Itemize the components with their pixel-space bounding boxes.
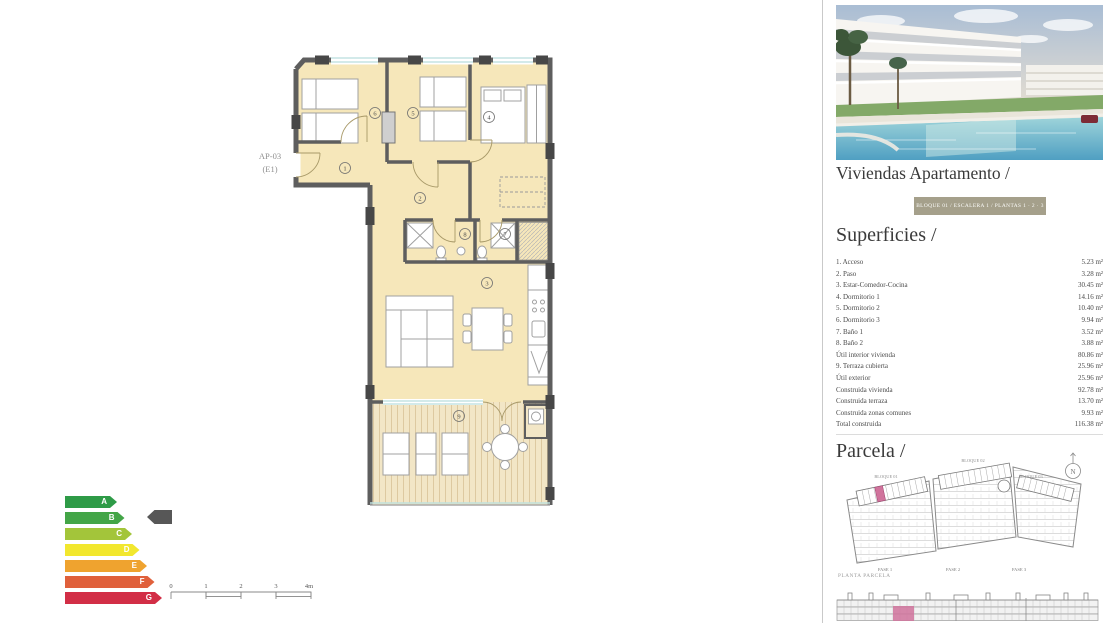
superficie-value: 25.96 m² xyxy=(1078,373,1103,385)
superficie-row: 3. Estar-Comedor-Cocina30.45 m² xyxy=(836,280,1103,292)
superficie-row: 9. Terraza cubierta25.96 m² xyxy=(836,361,1103,373)
elevation-drawing xyxy=(836,590,1100,621)
energy-bar-letter: G xyxy=(146,592,152,604)
svg-text:BLOQUE 02: BLOQUE 02 xyxy=(961,458,984,463)
energy-bar-a: A xyxy=(65,496,117,508)
energy-bar-g: G xyxy=(65,592,162,604)
svg-text:0: 0 xyxy=(169,583,172,590)
superficie-label: 6. Dormitorio 3 xyxy=(836,315,880,327)
roof-ticks xyxy=(837,593,1098,600)
svg-text:2: 2 xyxy=(239,583,242,590)
superficie-label: 5. Dormitorio 2 xyxy=(836,303,880,315)
superficie-row: 4. Dormitorio 114.16 m² xyxy=(836,292,1103,304)
superficie-label: 8. Baño 2 xyxy=(836,338,863,350)
superficie-value: 92.78 m² xyxy=(1078,385,1103,397)
vertical-divider xyxy=(822,0,823,623)
energy-bar-b: B xyxy=(65,512,125,524)
superficie-value: 9.93 m² xyxy=(1081,408,1103,420)
superficie-row: Total construida116.38 m² xyxy=(836,419,1103,431)
energy-bar-letter: F xyxy=(140,576,145,588)
superficie-row: 8. Baño 23.88 m² xyxy=(836,338,1103,350)
superficie-value: 9.94 m² xyxy=(1081,315,1103,327)
superficie-label: 1. Acceso xyxy=(836,257,863,269)
building-photo xyxy=(836,5,1103,160)
superficie-label: 3. Estar-Comedor-Cocina xyxy=(836,280,908,292)
superficie-row: 1. Acceso5.23 m² xyxy=(836,257,1103,269)
superficie-label: Construida terraza xyxy=(836,396,888,408)
superficie-value: 14.16 m² xyxy=(1078,292,1103,304)
superficie-row: Construida zonas comunes9.93 m² xyxy=(836,408,1103,420)
page-title: Viviendas Apartamento / xyxy=(836,163,1010,184)
svg-text:FASE 3: FASE 3 xyxy=(1012,567,1027,572)
superficie-row: Útil interior vivienda80.86 m² xyxy=(836,350,1103,362)
superficie-value: 3.28 m² xyxy=(1081,269,1103,281)
superficie-value: 10.40 m² xyxy=(1078,303,1103,315)
superficie-row: 5. Dormitorio 210.40 m² xyxy=(836,303,1103,315)
superficie-label: Construida zonas comunes xyxy=(836,408,911,420)
energy-bar-letter: D xyxy=(124,544,130,556)
energy-bar-letter: A xyxy=(101,496,107,508)
superficie-label: 2. Paso xyxy=(836,269,856,281)
svg-text:3: 3 xyxy=(274,583,277,590)
energy-bar-c: C xyxy=(65,528,132,540)
site-plan: BLOQUE 01 BLOQUE 02 BLOQUE 03 FASE 1 FAS… xyxy=(841,450,1093,578)
scale-bar: 0 1 2 3 4m xyxy=(168,581,314,605)
energy-bar-letter: C xyxy=(116,528,122,540)
fase-labels: FASE 1 FASE 2 FASE 3 xyxy=(878,567,1027,572)
floor-plan: 1 2 3 4 5 6 7 8 9 xyxy=(283,55,573,515)
superficie-row: 7. Baño 13.52 m² xyxy=(836,327,1103,339)
superficie-label: Útil exterior xyxy=(836,373,870,385)
parcela-section: Parcela / xyxy=(836,440,1103,623)
superficie-value: 3.88 m² xyxy=(1081,338,1103,350)
superficie-row: 2. Paso3.28 m² xyxy=(836,269,1103,281)
compass-icon: N xyxy=(1066,453,1081,479)
superficie-label: Útil interior vivienda xyxy=(836,350,895,362)
energy-bar-letter: E xyxy=(132,560,137,572)
planta-parcela-caption: PLANTA PARCELA xyxy=(838,573,891,579)
energy-bar-letter: B xyxy=(109,512,115,524)
svg-text:2: 2 xyxy=(418,196,421,203)
superficie-label: 9. Terraza cubierta xyxy=(836,361,888,373)
svg-text:8: 8 xyxy=(463,232,466,239)
scale-labels: 0 1 2 3 4m xyxy=(169,583,313,590)
energy-bar-f: F xyxy=(65,576,155,588)
brochure-page: AP-03 (E1) xyxy=(0,0,1110,623)
svg-text:4m: 4m xyxy=(305,583,313,590)
superficie-label: 7. Baño 1 xyxy=(836,327,863,339)
block-banner: BLOQUE 01 / ESCALERA 1 / PLANTAS 1 · 2 ·… xyxy=(914,197,1046,215)
terrace-storage xyxy=(525,405,547,438)
superficie-row: Construida vivienda92.78 m² xyxy=(836,385,1103,397)
superficie-label: 4. Dormitorio 1 xyxy=(836,292,880,304)
superficie-value: 5.23 m² xyxy=(1081,257,1103,269)
superficies-heading: Superficies / xyxy=(836,224,937,247)
svg-text:3: 3 xyxy=(485,281,488,288)
svg-text:BLOQUE 01: BLOQUE 01 xyxy=(874,474,897,479)
closet xyxy=(382,112,395,143)
svg-text:FASE 2: FASE 2 xyxy=(946,567,961,572)
superficie-row: Útil exterior25.96 m² xyxy=(836,373,1103,385)
superficie-value: 116.38 m² xyxy=(1075,419,1103,431)
floor-plan-drawing: 1 2 3 4 5 6 7 8 9 xyxy=(283,55,573,515)
superficies-rows: 1. Acceso5.23 m²2. Paso3.28 m²3. Estar-C… xyxy=(836,257,1103,435)
svg-text:N: N xyxy=(1070,468,1075,476)
right-panel: Viviendas Apartamento / BLOQUE 01 / ESCA… xyxy=(836,0,1103,623)
svg-text:FASE 1: FASE 1 xyxy=(878,567,893,572)
superficie-value: 25.96 m² xyxy=(1078,361,1103,373)
highlighted-elevation-unit xyxy=(893,606,914,621)
energy-bar-e: E xyxy=(65,560,147,572)
superficie-value: 30.45 m² xyxy=(1078,280,1103,292)
scale-ticks xyxy=(171,592,311,599)
svg-text:5: 5 xyxy=(411,111,414,118)
shaft xyxy=(519,223,548,261)
superficie-row: 6. Dormitorio 39.94 m² xyxy=(836,315,1103,327)
superficie-value: 13.70 m² xyxy=(1078,396,1103,408)
svg-text:BLOQUE 03: BLOQUE 03 xyxy=(1019,474,1043,479)
superficie-label: Total construida xyxy=(836,419,881,431)
svg-text:9: 9 xyxy=(457,414,460,421)
energy-bar-d: D xyxy=(65,544,140,556)
superficie-value: 80.86 m² xyxy=(1078,350,1103,362)
superficie-value: 3.52 m² xyxy=(1081,327,1103,339)
svg-text:1: 1 xyxy=(204,583,207,590)
superficie-label: Construida vivienda xyxy=(836,385,893,397)
superficie-row: Construida terraza13.70 m² xyxy=(836,396,1103,408)
svg-text:1: 1 xyxy=(343,166,346,173)
